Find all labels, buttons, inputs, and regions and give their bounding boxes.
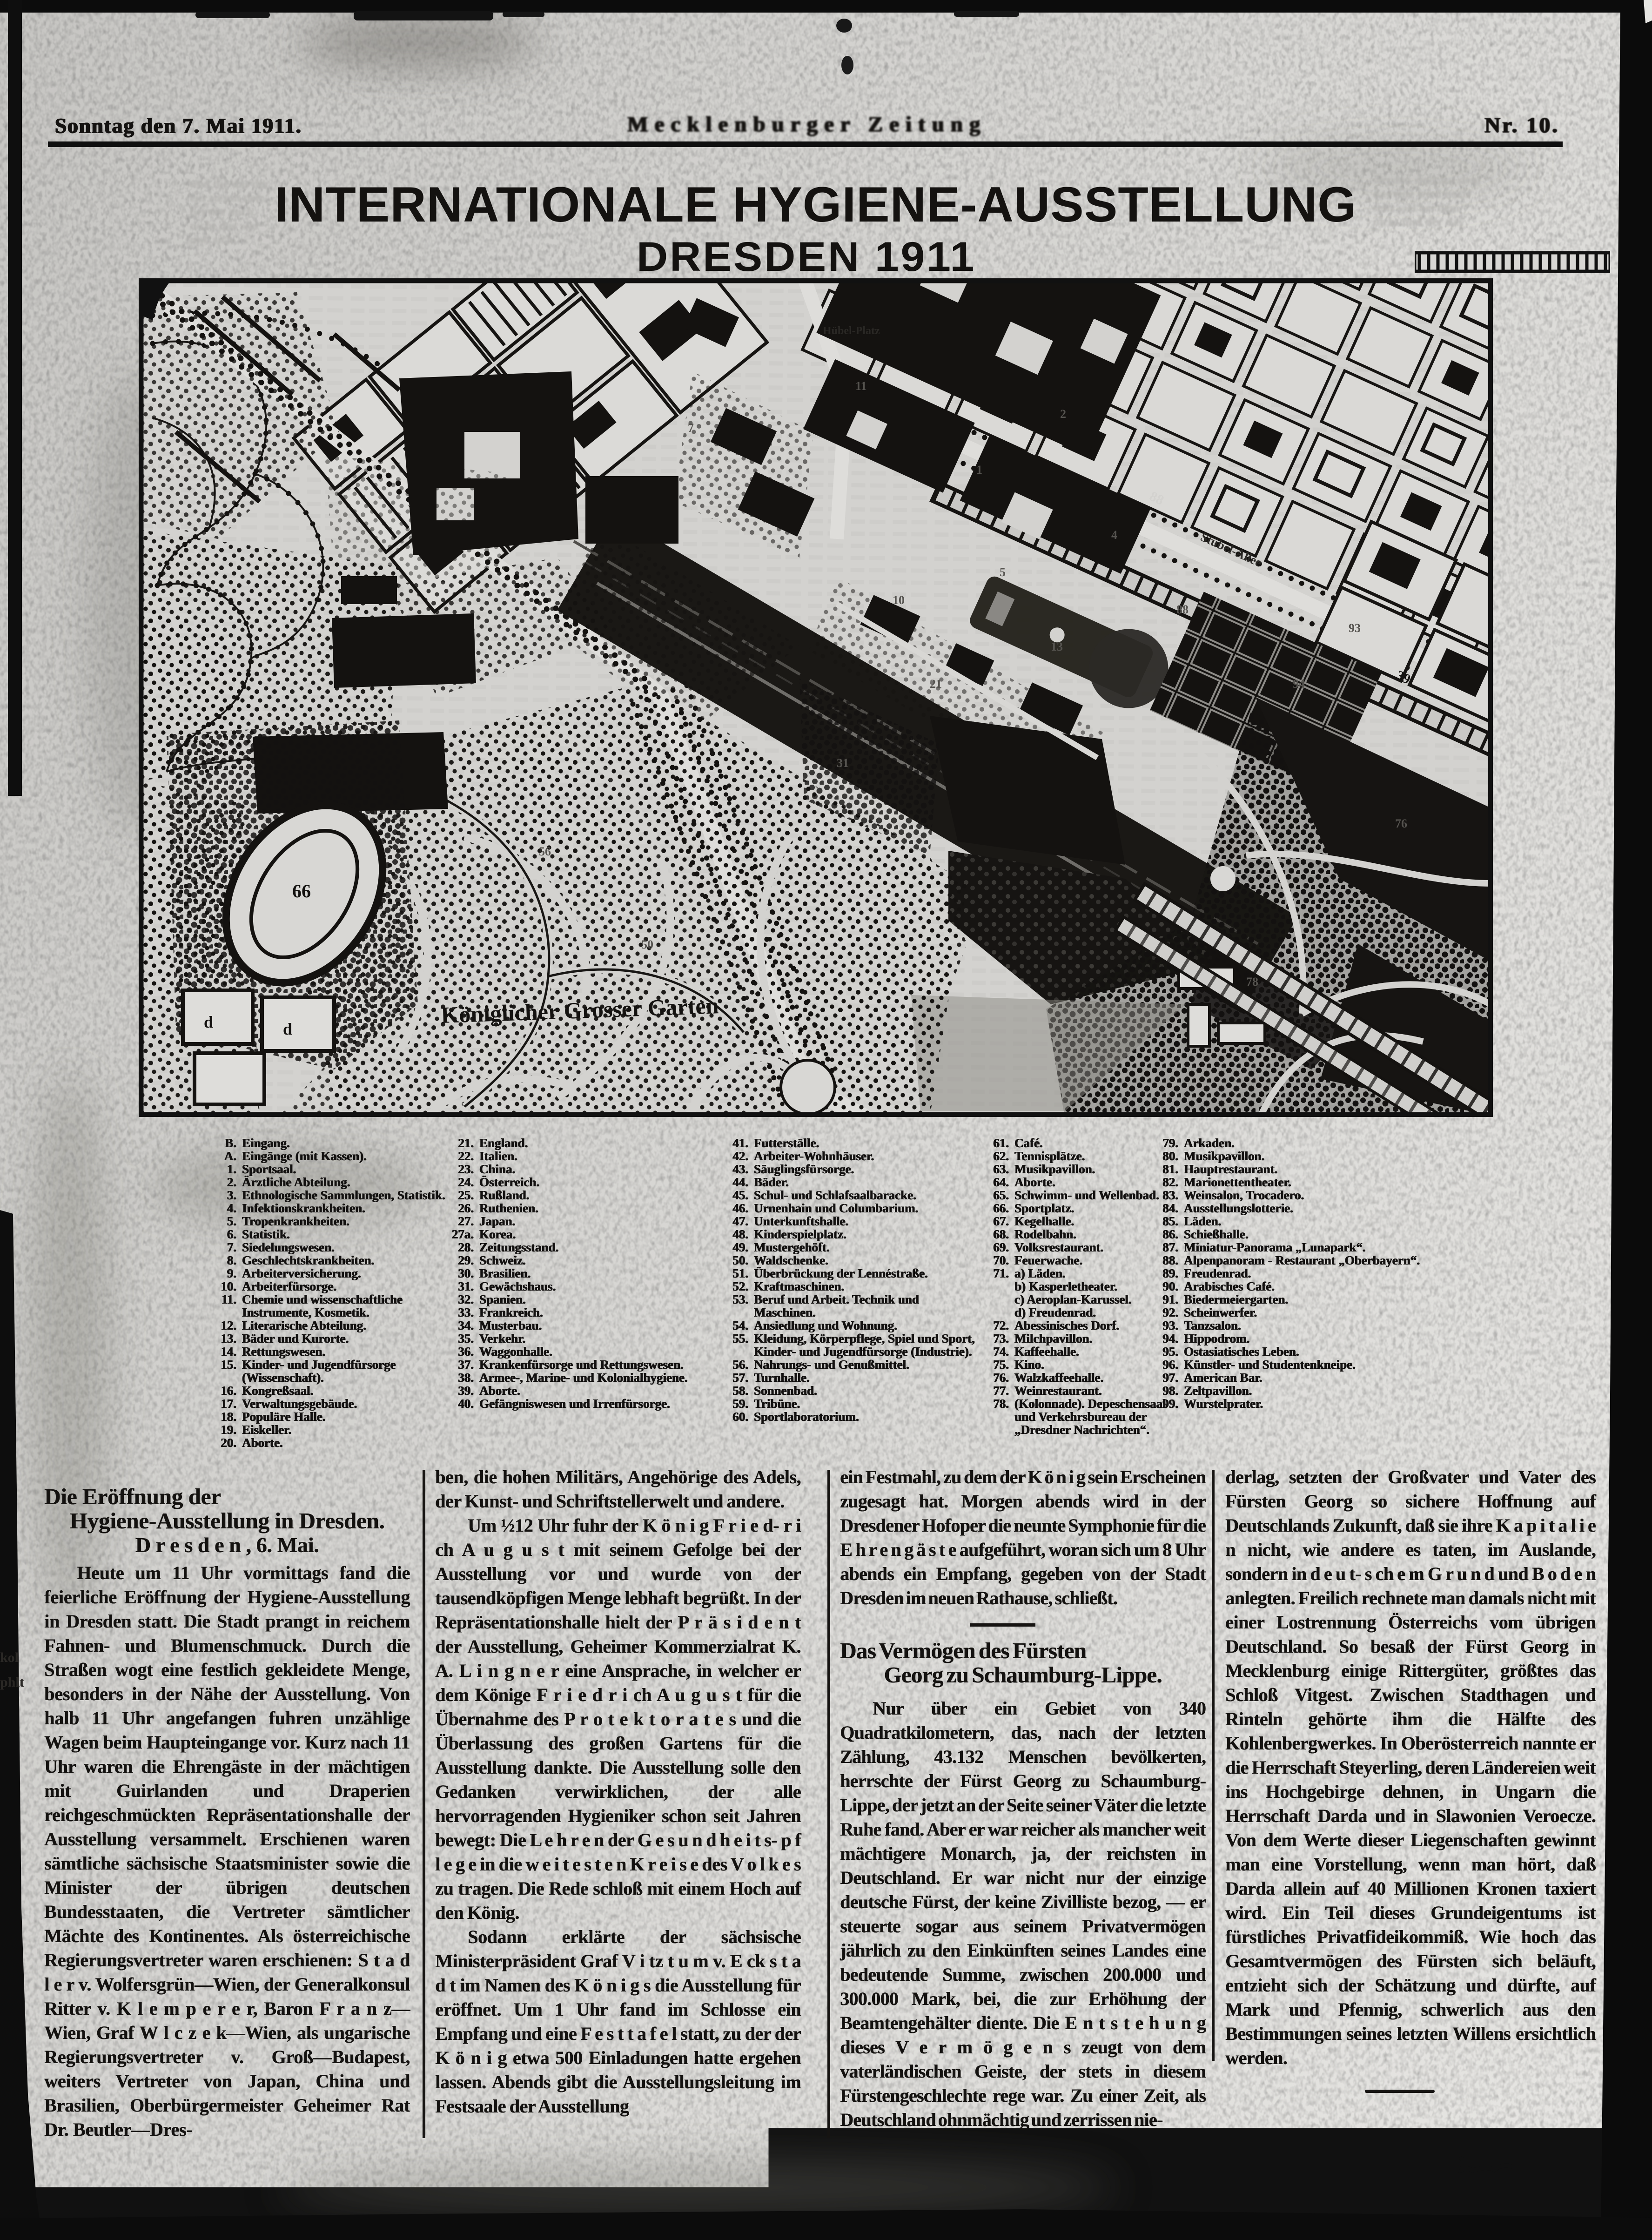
svg-text:d: d — [283, 1020, 292, 1038]
svg-text:76: 76 — [1395, 817, 1407, 830]
svg-text:1: 1 — [976, 463, 982, 477]
svg-text:5: 5 — [1000, 565, 1006, 579]
svg-text:93: 93 — [1349, 621, 1361, 635]
svg-text:94: 94 — [1293, 677, 1305, 691]
svg-text:4: 4 — [1111, 528, 1117, 542]
svg-text:21: 21 — [930, 677, 942, 691]
svg-text:13: 13 — [1051, 640, 1063, 653]
svg-text:31: 31 — [837, 756, 849, 770]
svg-text:Hübel-Platz: Hübel-Platz — [823, 325, 880, 337]
svg-text:2: 2 — [1060, 407, 1066, 421]
svg-text:50: 50 — [641, 938, 653, 951]
svg-text:10: 10 — [893, 593, 905, 607]
svg-text:11: 11 — [855, 379, 867, 393]
svg-text:78: 78 — [1246, 975, 1258, 989]
svg-text:88: 88 — [1176, 603, 1189, 616]
svg-text:d: d — [204, 1013, 213, 1031]
svg-text:56: 56 — [539, 845, 551, 858]
svg-text:66: 66 — [292, 881, 311, 901]
svg-text:7: 7 — [688, 421, 694, 435]
